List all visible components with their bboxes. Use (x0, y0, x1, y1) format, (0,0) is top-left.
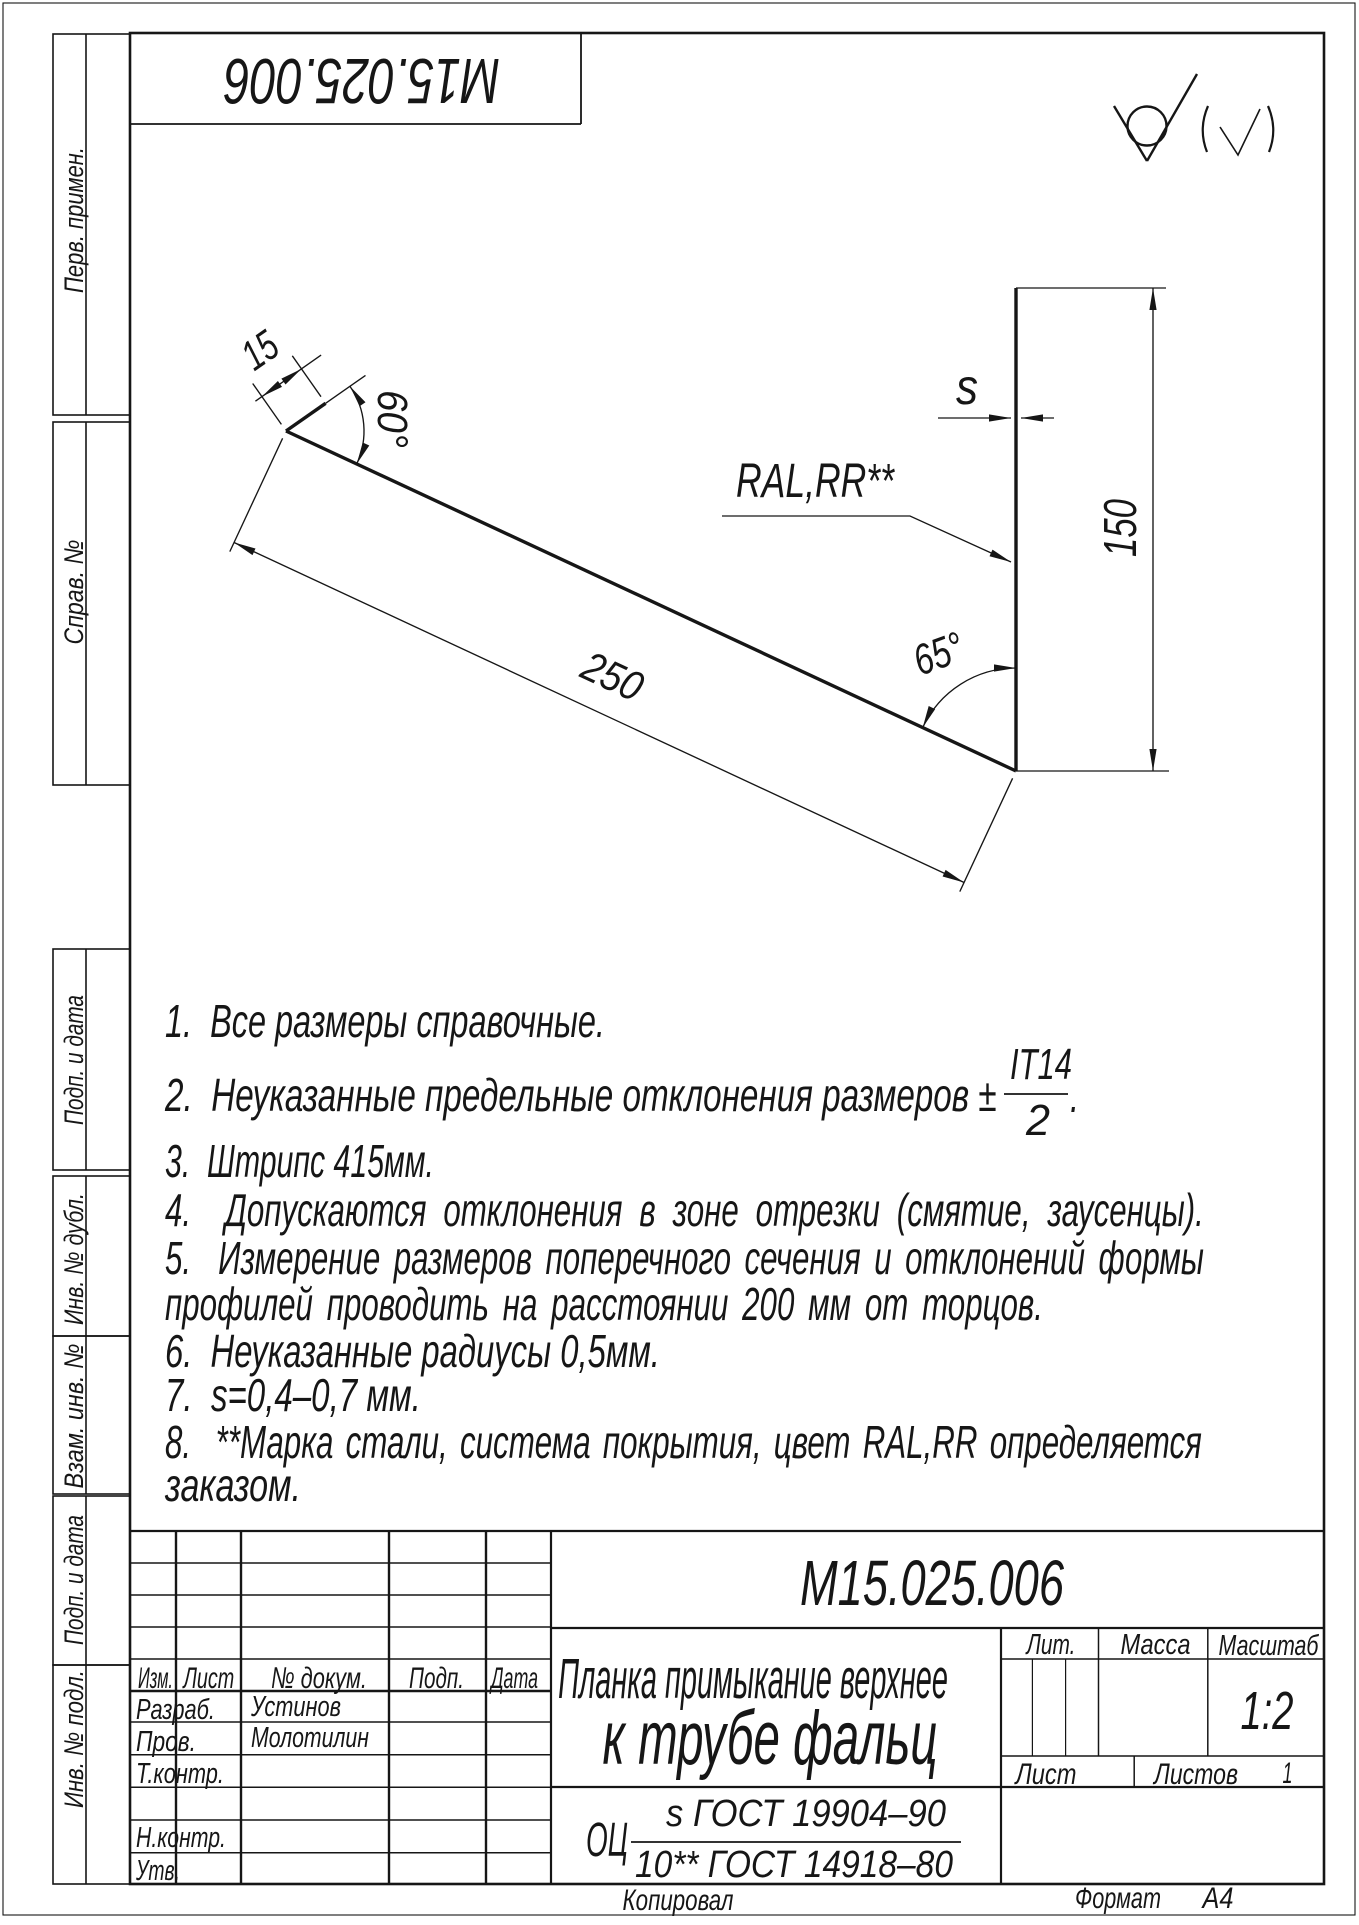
svg-text:заказом.: заказом. (164, 1459, 301, 1511)
svg-text:1:2: 1:2 (1241, 1680, 1294, 1740)
svg-text:к трубе фальц: к трубе фальц (603, 1697, 938, 1781)
svg-text:Т.контр.: Т.контр. (136, 1758, 224, 1790)
svg-text:s ГОСТ 19904–90: s ГОСТ 19904–90 (666, 1791, 946, 1834)
svg-text:7. s=0,4–0,7 мм.: 7. s=0,4–0,7 мм. (165, 1371, 421, 1422)
svg-text:Изм.: Изм. (138, 1662, 173, 1695)
svg-text:1: 1 (1283, 1758, 1293, 1791)
svg-text:1. Все размеры справочные.: 1. Все размеры справочные. (165, 997, 605, 1048)
svg-text:IT14: IT14 (1010, 1041, 1072, 1090)
svg-text:Лист: Лист (182, 1662, 235, 1695)
svg-text:Подп. и дата: Подп. и дата (59, 995, 89, 1125)
svg-text:10** ГОСТ 14918–80: 10** ГОСТ 14918–80 (635, 1843, 953, 1885)
svg-text:6. Неуказанные радиусы 0,5мм.: 6. Неуказанные радиусы 0,5мм. (165, 1327, 660, 1378)
svg-text:Молотилин: Молотилин (251, 1722, 369, 1754)
svg-text:2: 2 (1025, 1097, 1050, 1145)
svg-text:2. Неуказанные предельные отк: 2. Неуказанные предельные отклонения раз… (164, 1070, 996, 1122)
svg-text:8. **Марка стали, система пок: 8. **Марка стали, система покрытия, цвет… (165, 1417, 1202, 1468)
svg-text:профилей проводить на расстоян: профилей проводить на расстоянии 200 мм … (165, 1279, 1043, 1330)
svg-text:Масса: Масса (1121, 1628, 1191, 1661)
svg-text:№ докум.: № докум. (271, 1661, 367, 1695)
svg-text:Лист: Лист (1014, 1757, 1077, 1790)
svg-text:Разраб.: Разраб. (136, 1694, 215, 1726)
svg-text:.: . (1070, 1071, 1079, 1122)
svg-text:Устинов: Устинов (250, 1691, 341, 1723)
svg-text:Справ. №: Справ. № (59, 540, 89, 645)
svg-text:Пров.: Пров. (136, 1724, 196, 1757)
svg-text:Взам. инв. №: Взам. инв. № (60, 1344, 90, 1489)
svg-text:s: s (956, 358, 978, 414)
svg-text:Перв. примен.: Перв. примен. (60, 147, 90, 293)
svg-text:А4: А4 (1201, 1881, 1234, 1914)
svg-text:Подп. и дата: Подп. и дата (59, 1515, 89, 1645)
svg-text:150: 150 (1094, 499, 1146, 557)
svg-text:4. Допускаются отклонения в з: 4. Допускаются отклонения в зоне отрезки… (165, 1185, 1204, 1236)
svg-text:5. Измерение размеров попереч: 5. Измерение размеров поперечного сечени… (165, 1233, 1204, 1284)
svg-text:Утв.: Утв. (135, 1855, 180, 1887)
svg-text:Листов: Листов (1152, 1757, 1238, 1791)
svg-text:М15.025.006: М15.025.006 (223, 45, 500, 117)
svg-text:60°: 60° (369, 390, 418, 448)
svg-text:Инв. № дубл.: Инв. № дубл. (60, 1193, 90, 1325)
svg-text:М15.025.006: М15.025.006 (800, 1547, 1064, 1619)
svg-text:Формат: Формат (1075, 1880, 1161, 1914)
svg-text:Копировал: Копировал (623, 1883, 734, 1917)
svg-text:Подп.: Подп. (409, 1662, 464, 1695)
svg-text:3. Штрипс 415мм.: 3. Штрипс 415мм. (165, 1137, 434, 1188)
svg-text:ОЦ: ОЦ (586, 1813, 628, 1867)
svg-text:Масштаб: Масштаб (1219, 1630, 1320, 1662)
svg-text:Н.контр.: Н.контр. (136, 1822, 226, 1854)
svg-text:Лит.: Лит. (1025, 1629, 1076, 1661)
svg-text:Дата: Дата (489, 1662, 538, 1695)
svg-text:RAL,RR**: RAL,RR** (736, 454, 895, 507)
svg-text:Инв. № подл.: Инв. № подл. (60, 1670, 89, 1808)
